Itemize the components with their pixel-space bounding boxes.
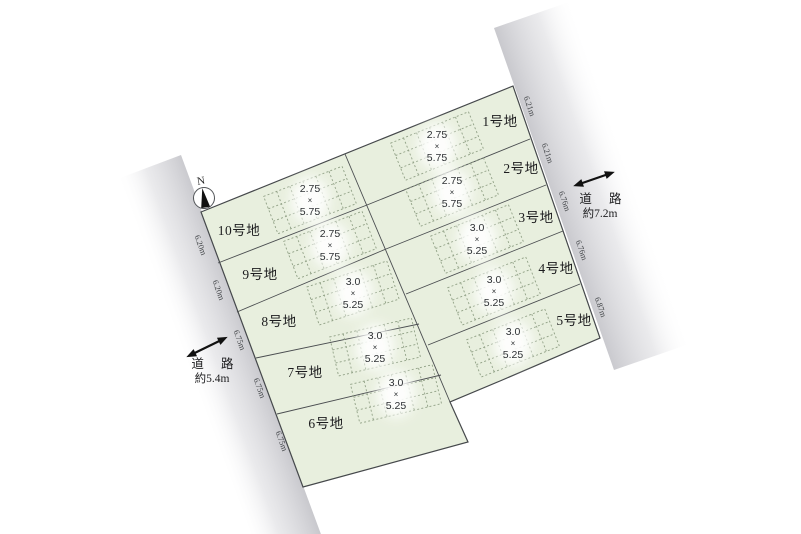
plot-1-label: 1号地	[482, 114, 517, 129]
road-width-left: 約5.4m	[195, 371, 230, 385]
road-width-right: 約7.2m	[583, 206, 618, 220]
plot-3-label: 3号地	[518, 210, 553, 225]
plot-10-label: 10号地	[218, 223, 261, 238]
road-name-right: 道 路	[579, 191, 628, 206]
plot-6-label: 6号地	[308, 416, 343, 431]
plot-2-label: 2号地	[503, 161, 538, 176]
plot-5-label: 5号地	[556, 313, 591, 328]
plot-9-label: 9号地	[242, 267, 277, 282]
site-plan: 2.75×5.75 2.75×5.75 3.0×5.25 3.0×5.25 3.…	[0, 0, 801, 534]
plot-4-label: 4号地	[538, 261, 573, 276]
site-plan-page: 2.75×5.75 2.75×5.75 3.0×5.25 3.0×5.25 3.…	[0, 0, 801, 534]
plot-7-label: 7号地	[287, 365, 322, 380]
road-name-left: 道 路	[191, 356, 240, 371]
north-label: N	[196, 175, 206, 188]
plot-8-label: 8号地	[261, 314, 296, 329]
